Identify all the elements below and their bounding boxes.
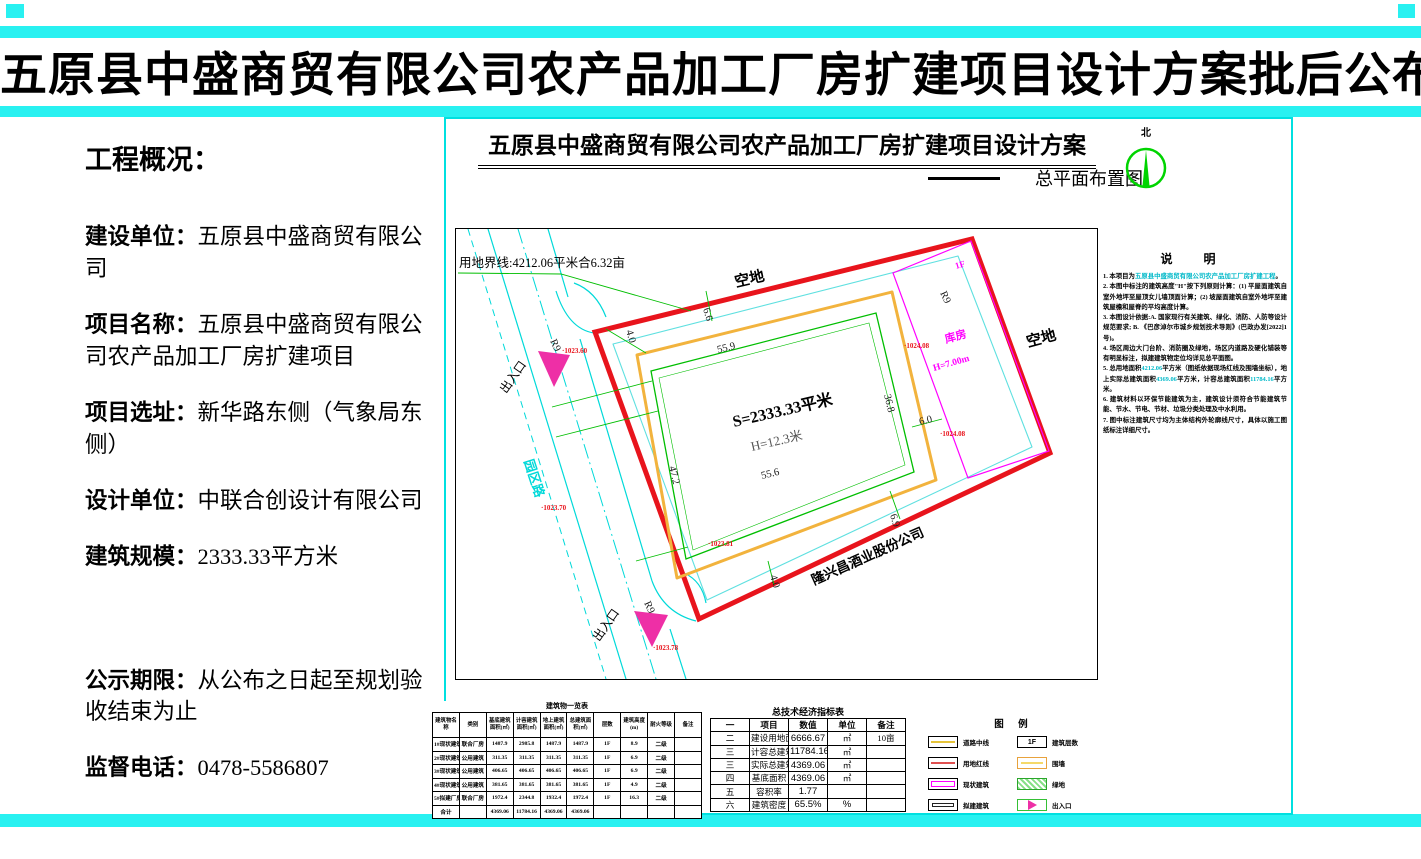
cell: 地上建筑面积(㎡) [540,713,567,738]
cell: 建筑高度(m) [621,713,648,738]
cell [867,772,906,785]
elevation-1023.81: ·1023.81 [708,540,734,548]
title-underbar [0,106,1421,117]
overview-item: 项目选址：新华路东侧（气象局东侧） [85,397,423,461]
dim-6.0: 6.0 [918,414,933,428]
cell: 11784.16 [513,805,540,819]
cell [459,805,486,819]
road-centerline-swatch [928,736,958,748]
summary-table: 总技术经济指标表一项目数值单位备注二建设用地面积6666.67㎡10亩三计容总建… [710,705,906,812]
building-area-label: S=2333.33平米 [731,389,836,431]
cell: 1972.4 [486,792,513,806]
cell: 二级 [648,738,675,752]
cell: 合计 [433,805,460,819]
cell: 4#现状建筑物 [433,778,460,792]
entrance-swatch [1017,799,1047,811]
project-overview: 工程概况： 建设单位：五原县中盛商贸有限公司项目名称：五原县中盛商贸有限公司农产… [85,138,423,808]
boundary-label: 用地界线:4212.06平米合6.32亩 [459,255,625,270]
legend-label: 用地红线 [963,758,989,768]
cell: 4369.06 [567,805,594,819]
entrance-arrow-bottom [634,611,668,647]
cell: 数值 [789,719,828,732]
elevation-1023.60: ·1023.60 [562,347,588,355]
elevation-1024.08-b: ·1024.08 [940,430,966,438]
cell [828,785,867,798]
cell: 五 [711,785,750,798]
page-title: 五原县中盛商贸有限公司农产品加工厂房扩建项目设计方案批后公布 [0,36,1421,105]
cell: 联合厂房 [459,738,486,752]
cell [675,751,702,765]
overview-heading: 工程概况： [85,138,423,177]
cell [675,792,702,806]
radius-r9-topright: R9 [937,290,952,306]
overview-item: 监督电话：0478-5586807 [85,752,423,784]
building-table: 建筑物一览表建筑物名称类别基底建筑面积(㎡)计容建筑面积(㎡)地上建筑面积(㎡)… [432,701,702,819]
cell: 基底面积 [750,772,789,785]
road-lines [468,229,706,679]
cell: ㎡ [828,772,867,785]
cell [675,805,702,819]
legend-item: 绿地 [1017,778,1100,790]
cell [675,738,702,752]
cell: 6.9 [621,765,648,779]
cell [867,745,906,758]
cell: 1487.9 [567,738,594,752]
cell: 4369.06 [540,805,567,819]
cell [867,785,906,798]
warehouse-height-label: H=7.00m [932,354,971,374]
greenery-swatch [1017,778,1047,790]
cell: ㎡ [828,732,867,745]
cell: 1487.9 [540,738,567,752]
cell: 311.35 [486,751,513,765]
cell: 建筑物名称 [433,713,460,738]
notes-section: 说 明 1. 本项目为五原县中盛商贸有限公司农产品加工厂房扩建工程。2. 本图中… [1103,250,1287,436]
cell: 项目 [750,719,789,732]
bottom-bar [0,814,1421,827]
table-title: 总技术经济指标表 [711,705,906,719]
cell: 三 [711,758,750,771]
wall-swatch [1017,757,1047,769]
cell: % [828,798,867,811]
overview-item: 公示期限：从公布之日起至规划验收结束为止 [85,665,423,729]
elevation-1024.08-a: ·1024.08 [904,342,930,350]
proposed-building-swatch [928,799,958,811]
dim-55.9: 55.9 [716,341,736,356]
cell: 406.65 [540,765,567,779]
cell [594,805,621,819]
label-entrance-bottom: 出入口 [590,606,622,644]
corner-mark-left [6,4,24,18]
radius-r9-left: R9 [547,338,562,354]
cell [867,758,906,771]
site-plan: 用地界线:4212.06平米合6.32亩 空地 空地 出入口 出入口 园区路 隆… [456,229,1097,679]
cell: 建设用地面积 [750,732,789,745]
cell: 1.77 [789,785,828,798]
cell: 层数 [594,713,621,738]
cell: 381.65 [567,778,594,792]
cell: 单位 [828,719,867,732]
cell: 二级 [648,778,675,792]
label-road: 园区路 [521,457,548,500]
legend-grid: 道路中线用地红线现状建筑拟建建筑1F建筑层数围墙绿地出入口 [928,736,1100,811]
cell: 2344.8 [513,792,540,806]
cell: 三 [711,745,750,758]
label-entrance-top: 出入口 [497,358,529,396]
note-item: 3. 本图设计依据:A. 国家现行有关建筑、绿化、消防、人防等设计规范要求; B… [1103,313,1287,344]
cell: 311.35 [513,751,540,765]
note-item: 7. 图中标注建筑尺寸均为主体结构外轮廓线尺寸，具体以施工图纸标注详细尺寸。 [1103,416,1287,437]
note-item: 5. 总用地面积4212.06平方米（图纸依据现场红线及围墙坐标），地上实际总建… [1103,364,1287,395]
cell: 二级 [648,751,675,765]
cell: 311.35 [567,751,594,765]
north-label: 北 [1141,126,1151,139]
cell: 实际总建筑面积 [750,758,789,771]
red-boundary-swatch [928,757,958,769]
dim-36.8: 36.8 [881,393,896,413]
cell: 四 [711,772,750,785]
cell: 计容建筑面积(㎡) [513,713,540,738]
cell: 1F [594,751,621,765]
cell [867,798,906,811]
cell: 一 [711,719,750,732]
warehouse-floor-label: 1F [954,258,967,271]
cell: 建筑密度 [750,798,789,811]
cell: 381.65 [486,778,513,792]
overview-item: 项目名称：五原县中盛商贸有限公司农产品加工厂房扩建项目 [85,309,423,373]
warehouse-outline [893,241,1049,478]
legend-item: 道路中线 [928,736,1011,748]
cell: 10亩 [867,732,906,745]
cell: 16.3 [621,792,648,806]
legend-item: 现状建筑 [928,778,1011,790]
dimension-texts: 4.0 6.6 55.9 47.2 55.6 36.8 6.0 6.9 4.0 … [547,290,952,616]
elevation-1023.70: ·1023.70 [541,504,567,512]
cell: 4369.06 [789,772,828,785]
legend-item: 用地红线 [928,757,1011,769]
cell: ㎡ [828,745,867,758]
cell: 公用建筑 [459,778,486,792]
note-item: 1. 本项目为五原县中盛商贸有限公司农产品加工厂房扩建工程。 [1103,272,1287,282]
cell: 容积率 [750,785,789,798]
notes-list: 1. 本项目为五原县中盛商贸有限公司农产品加工厂房扩建工程。2. 本图中标注的建… [1103,272,1287,436]
label-neighbor: 隆兴昌酒业股份公司 [809,524,927,588]
overview-item: 设计单位：中联合创设计有限公司 [85,485,423,517]
legend-item: 拟建建筑 [928,799,1011,811]
cell: 381.65 [513,778,540,792]
public-notice-page: { "page_title": "五原县中盛商贸有限公司农产品加工厂房扩建项目设… [0,0,1421,859]
cell: 11784.16 [789,745,828,758]
cell: 1972.4 [567,792,594,806]
label-empty-right: 空地 [1024,326,1058,351]
cell: 公用建筑 [459,751,486,765]
notes-title: 说 明 [1103,250,1287,267]
legend-label: 建筑层数 [1052,737,1078,747]
legend: 图 例 道路中线用地红线现状建筑拟建建筑1F建筑层数围墙绿地出入口 [928,716,1100,811]
cell: 3#现状建筑物 [433,765,460,779]
cell: 6666.67 [789,732,828,745]
cell: 1F [594,738,621,752]
building-height-label: H=12.3米 [749,428,804,454]
floor-count-swatch: 1F [1017,736,1047,748]
cell: 1F [594,792,621,806]
cell: 1487.9 [486,738,513,752]
cell [675,778,702,792]
cell: 406.65 [567,765,594,779]
cell: 1932.4 [540,792,567,806]
cell: 联合厂房 [459,792,486,806]
cell: 5#拟建厂房 [433,792,460,806]
plan-label-dash [928,177,1000,180]
elevation-markers: ·1023.60 ·1023.70 ·1023.81 ·1023.78 ·102… [541,342,966,652]
dim-6.6: 6.6 [700,307,714,323]
cell: 基底建筑面积(㎡) [486,713,513,738]
cell [648,805,675,819]
legend-item: 围墙 [1017,757,1100,769]
cell [621,805,648,819]
legend-title: 图 例 [928,716,1100,730]
overview-list: 建设单位：五原县中盛商贸有限公司项目名称：五原县中盛商贸有限公司农产品加工厂房扩… [85,221,423,784]
land-boundary-redline [595,239,1050,619]
legend-label: 围墙 [1052,758,1065,768]
legend-label: 出入口 [1052,800,1072,810]
cell: 备注 [675,713,702,738]
dim-4.0-top: 4.0 [623,329,637,345]
cell: 公用建筑 [459,765,486,779]
legend-label: 道路中线 [963,737,989,747]
cell: 备注 [867,719,906,732]
cell: 1#现状建筑物 [433,738,460,752]
cell: 406.65 [486,765,513,779]
legend-label: 拟建建筑 [963,800,989,810]
label-empty-top: 空地 [733,267,766,291]
cell: 4369.06 [486,805,513,819]
legend-item: 1F建筑层数 [1017,736,1100,748]
note-item: 4. 场区周边大门台阶、消防圈及绿地，场区内道路及硬化铺装等有明显标注，拟建建筑… [1103,344,1287,365]
cell: 2#现状建筑物 [433,751,460,765]
cell: 2985.8 [513,738,540,752]
cell: 类别 [459,713,486,738]
legend-label: 绿地 [1052,779,1065,789]
cell: 六 [711,798,750,811]
cell: 8.9 [621,738,648,752]
cell: 1F [594,765,621,779]
north-needle [1143,150,1150,186]
overview-item: 建设单位：五原县中盛商贸有限公司 [85,221,423,285]
corner-mark-right [1398,4,1415,18]
site-plan-frame: 用地界线:4212.06平米合6.32亩 空地 空地 出入口 出入口 园区路 隆… [455,228,1098,680]
cell [675,765,702,779]
cell: 4369.06 [789,758,828,771]
cell: 406.65 [513,765,540,779]
elevation-1023.78: ·1023.78 [653,644,679,652]
table-title: 建筑物一览表 [433,701,702,713]
cell: 耐火等级 [648,713,675,738]
overview-item: 建筑规模：2333.33平方米 [85,541,423,573]
north-arrow: 北 [1116,124,1176,200]
drawing-title: 五原县中盛商贸有限公司农产品加工厂房扩建项目设计方案 [478,126,1096,169]
note-item: 2. 本图中标注的建筑高度"H"按下列原则计算：(1) 平屋面建筑自室外地坪至屋… [1103,282,1287,313]
note-item: 6. 建筑材料以环保节能建筑为主，建筑设计须符合节能建筑节能、节水、节电、节材、… [1103,395,1287,416]
cell: 6.9 [621,751,648,765]
cell: 381.65 [540,778,567,792]
cell: 311.35 [540,751,567,765]
existing-building-swatch [928,778,958,790]
dim-55.6: 55.6 [760,467,780,482]
cell: 二级 [648,765,675,779]
cell: 总建筑面积(㎡) [567,713,594,738]
legend-item: 出入口 [1017,799,1100,811]
cell: 计容总建筑面积 [750,745,789,758]
cell: ㎡ [828,758,867,771]
dim-47.2: 47.2 [666,465,681,485]
cell: 二 [711,732,750,745]
legend-label: 现状建筑 [963,779,989,789]
cell: 65.5% [789,798,828,811]
cell: 4.9 [621,778,648,792]
cell: 1F [594,778,621,792]
warehouse-label: 库房 [943,326,968,346]
cell: 二级 [648,792,675,806]
